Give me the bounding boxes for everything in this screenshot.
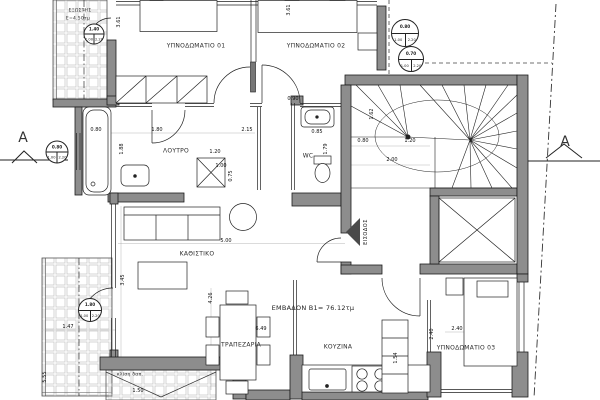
dimension-label: 0.80: [90, 127, 101, 133]
balcony-top-left: [53, 0, 107, 100]
dimension-label: 3.61: [116, 16, 122, 27]
elevator-shaft: [439, 198, 515, 262]
balcony-label: ΕΞΩΣΤΗΣ: [69, 9, 92, 14]
door-tag-size: 0.70: [399, 47, 423, 60]
dimension-label: 2.40: [429, 328, 435, 339]
dimension-label: 1.88: [119, 143, 125, 154]
bed-2: [258, 1, 357, 33]
dimension-label: 1.20: [209, 149, 220, 155]
room-label: ΥΠΝΟΔΩΜΑΤΙΟ 01: [167, 43, 226, 50]
dimension-label: 6.49: [255, 326, 266, 332]
door-tag: 0.801.002.20: [391, 19, 419, 47]
nightstand-2: [358, 33, 377, 50]
plan-drawing: [0, 0, 600, 400]
door-tag-size: 0.80: [47, 142, 68, 153]
door-tag: 0.801.002.20: [46, 141, 69, 164]
dimension-label: 1.62: [369, 108, 375, 119]
bathtub: [83, 107, 111, 195]
door-tag-size: 1.40: [85, 25, 104, 35]
door-tag: 1.801.002.20: [78, 298, 102, 322]
room-label: WC: [303, 153, 314, 160]
wc-sink: [301, 107, 334, 127]
section-marker-a-right: A: [560, 134, 570, 150]
dimension-label: 1.20: [404, 138, 415, 144]
dimension-label: 1.79: [323, 143, 329, 154]
bed-3: [446, 278, 517, 366]
room-label: ΥΠΝΟΔΩΜΑΤΙΟ 03: [437, 345, 496, 352]
staircase: [351, 85, 517, 188]
dimension-label: 0.85: [311, 129, 322, 135]
room-label: ΚΟΥΖΙΝΑ: [324, 344, 353, 351]
room-label: ΤΡΑΠΕΖΑΡΙΑ: [221, 342, 261, 349]
coffee-table: [138, 262, 187, 289]
dimension-label: 1.00: [215, 163, 226, 169]
section-marker-a-left: A: [18, 130, 28, 146]
dimension-label: 2.15: [241, 127, 252, 133]
wardrobe-1: [116, 76, 207, 103]
door-tag-size: 0.80: [392, 20, 418, 34]
slope-label: κλίση δαπ.: [117, 373, 143, 378]
door-tag: 0.701.002.20: [398, 46, 424, 72]
toilet: [314, 156, 331, 183]
door-tag-size: 1.80: [79, 299, 101, 311]
room-label: ΚΑΘΙΣΤΙΚΟ: [180, 251, 215, 258]
balcony-area-label: Ε=4.50τμ: [66, 17, 90, 22]
sofa: [124, 207, 220, 240]
dimension-label: 0.75: [228, 170, 234, 181]
room-label: ΥΠΝΟΔΩΜΑΤΙΟ 02: [287, 43, 346, 50]
dimension-label: 0.80: [357, 138, 368, 144]
dimension-label: 3.45: [120, 274, 126, 285]
door-leaf: [251, 62, 256, 92]
dimension-label: 1.80: [151, 127, 162, 133]
entrance-label: ΕΙΣΟΔΟΣ: [363, 219, 369, 245]
door-tag: 1.401.002.20: [84, 24, 105, 45]
walls: [53, 0, 528, 400]
dimension-label: 2.00: [386, 157, 397, 163]
bath-sink: [121, 165, 149, 186]
bed-1: [140, 1, 217, 32]
dimension-label: 2.40: [451, 326, 462, 332]
kitchen-counter: [302, 365, 430, 392]
dimension-label: 5.55: [42, 371, 48, 382]
room-label: ΛΟΥΤΡΟ: [163, 148, 189, 155]
balcony-bottom-left: [42, 258, 112, 396]
floor-plan: ΕΞΩΣΤΗΣ Ε=4.50τμ ΕΜΒΑΔΟΝ Β1= 76.12τμ ΕΙΣ…: [0, 0, 600, 400]
area-label: ΕΜΒΑΔΟΝ Β1= 76.12τμ: [272, 304, 355, 312]
dimension-label: 0.90: [287, 96, 298, 102]
dimension-label: 1.50: [132, 388, 143, 394]
dimension-label: 4.26: [208, 292, 214, 303]
dimension-label: 1.54: [393, 352, 399, 363]
dimension-label: 5.00: [220, 238, 231, 244]
round-table: [230, 204, 257, 231]
dimension-label: 3.61: [286, 4, 292, 15]
dimension-label: 1.47: [62, 324, 73, 330]
